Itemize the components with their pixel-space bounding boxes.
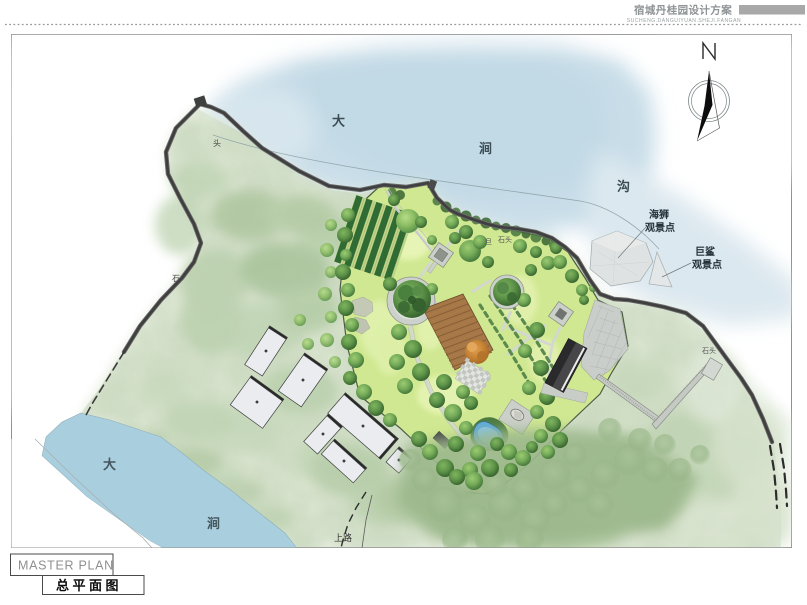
svg-text:旦: 旦 <box>485 238 492 246</box>
svg-text:沟: 沟 <box>617 179 630 194</box>
svg-text:巨鲨: 巨鲨 <box>695 245 715 258</box>
svg-text:观景点: 观景点 <box>645 221 675 234</box>
svg-text:石头: 石头 <box>498 235 512 244</box>
svg-text:大: 大 <box>332 114 345 129</box>
svg-text:涧: 涧 <box>207 516 220 531</box>
svg-text:上路: 上路 <box>334 532 352 543</box>
svg-text:宿城丹桂园设计方案: 宿城丹桂园设计方案 <box>634 4 732 17</box>
svg-text:总平面图: 总平面图 <box>56 578 122 593</box>
svg-text:石头: 石头 <box>702 346 716 355</box>
svg-text:大: 大 <box>103 457 116 472</box>
svg-text:观景点: 观景点 <box>692 258 722 271</box>
svg-text:头: 头 <box>213 138 221 148</box>
svg-text:SUCHENG.DANGUIYUAN.SHEJI.FANGA: SUCHENG.DANGUIYUAN.SHEJI.FANGAN <box>627 18 741 24</box>
svg-text:石: 石 <box>172 274 180 283</box>
svg-text:MASTER PLAN: MASTER PLAN <box>18 559 114 573</box>
svg-text:海狮: 海狮 <box>649 208 669 221</box>
svg-text:涧: 涧 <box>479 141 492 156</box>
